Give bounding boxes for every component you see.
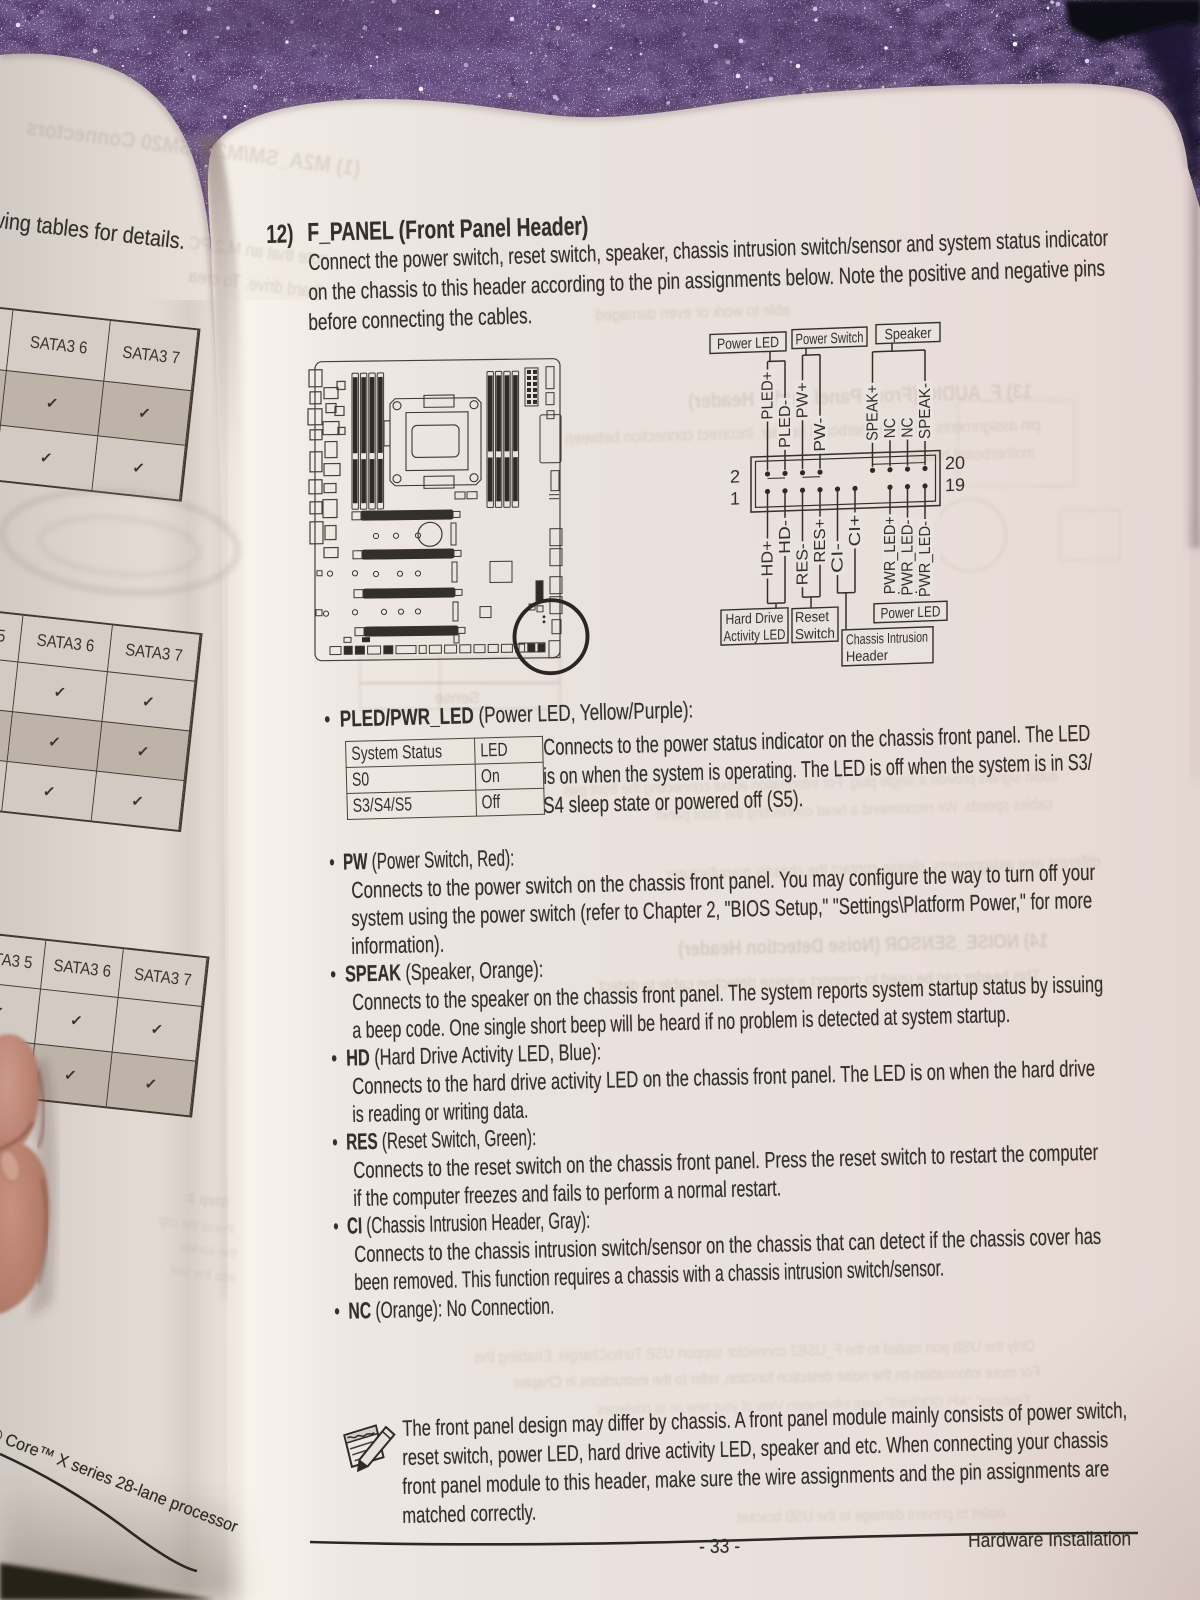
svg-text:Power LED: Power LED: [881, 603, 941, 622]
svg-text:Reset: Reset: [795, 609, 829, 626]
svg-text:20: 20: [945, 453, 965, 474]
svg-text:SPEAK+: SPEAK+: [865, 385, 882, 442]
svg-text:NC: NC: [900, 417, 917, 438]
svg-text:HD+: HD+: [760, 540, 777, 577]
svg-text:Header: Header: [846, 648, 888, 665]
svg-text:1: 1: [730, 488, 740, 508]
svg-text:Activity LED: Activity LED: [724, 627, 786, 645]
svg-text:Speaker: Speaker: [885, 325, 932, 344]
svg-text:PLED+: PLED+: [760, 371, 777, 420]
svg-text:Switch: Switch: [795, 626, 835, 643]
svg-text:HD-: HD-: [777, 520, 794, 555]
svg-text:PWR_LED-: PWR_LED-: [900, 519, 917, 596]
svg-text:CI+: CI+: [847, 514, 864, 547]
svg-text:NC: NC: [882, 418, 899, 439]
svg-text:PW+: PW+: [795, 382, 812, 419]
svg-text:Hard Drive: Hard Drive: [726, 610, 784, 628]
svg-text:PWR_LED-: PWR_LED-: [917, 521, 934, 598]
svg-text:PW-: PW-: [812, 417, 829, 452]
svg-text:PWR_LED+: PWR_LED+: [882, 516, 899, 595]
svg-text:19: 19: [945, 475, 965, 496]
svg-text:RES-: RES-: [795, 543, 812, 586]
svg-text:2: 2: [730, 466, 740, 486]
svg-text:SPEAK-: SPEAK-: [917, 383, 934, 440]
svg-text:Power LED: Power LED: [717, 334, 779, 353]
svg-text:CI-: CI-: [830, 543, 847, 574]
svg-text:Power Switch: Power Switch: [796, 329, 864, 348]
svg-text:RES+: RES+: [812, 518, 829, 563]
svg-text:PLED-: PLED-: [777, 400, 794, 449]
svg-text:Chassis Intrusion: Chassis Intrusion: [846, 630, 928, 649]
